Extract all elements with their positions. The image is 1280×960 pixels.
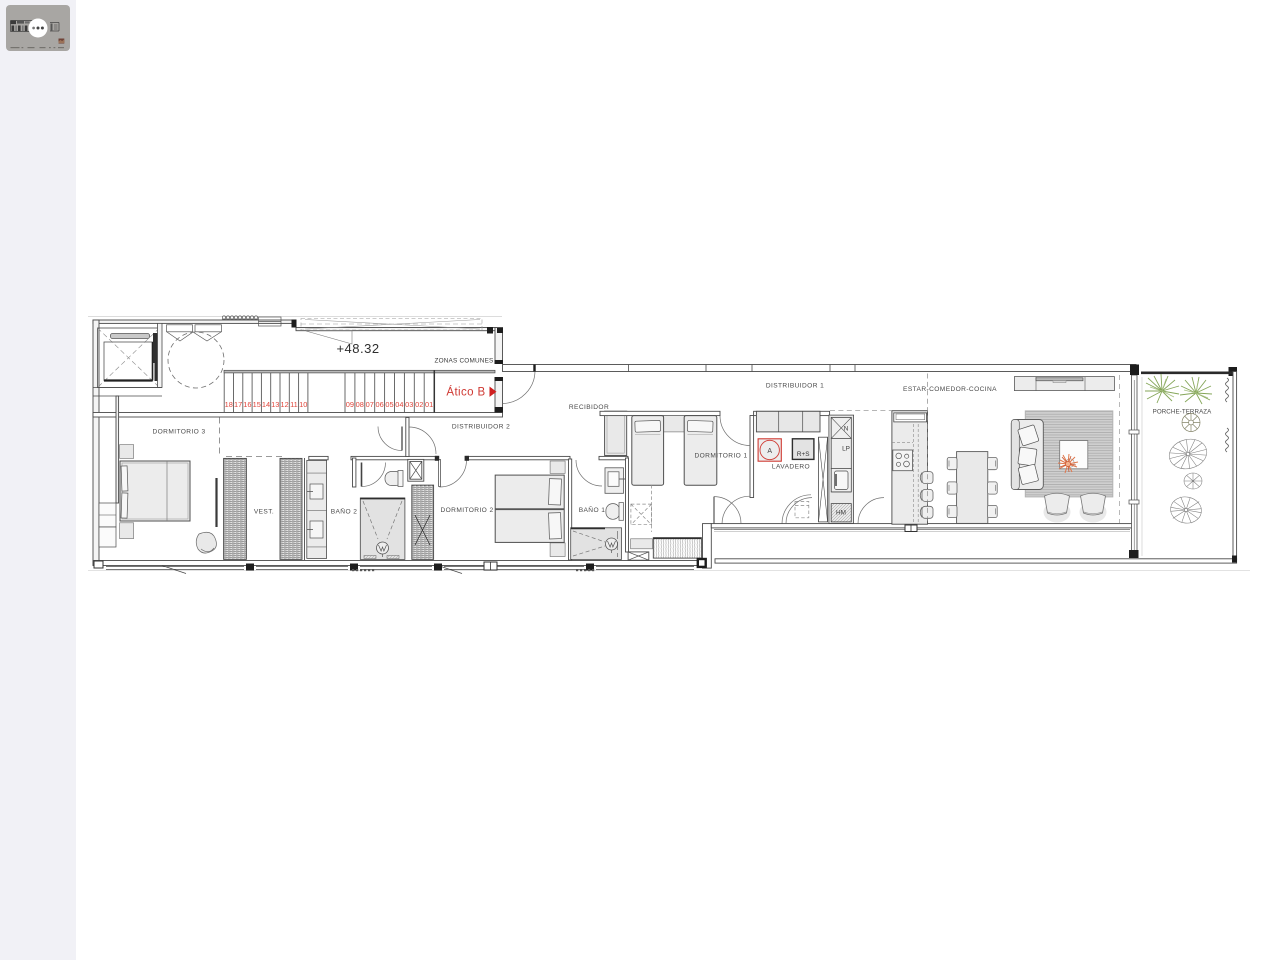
svg-text:04: 04 xyxy=(395,400,403,409)
svg-text:DORMITORIO 1: DORMITORIO 1 xyxy=(694,453,747,460)
svg-text:+48.32: +48.32 xyxy=(336,341,379,356)
svg-text:07: 07 xyxy=(366,400,374,409)
svg-text:DISTRIBUIDOR 2: DISTRIBUIDOR 2 xyxy=(452,424,510,431)
svg-text:13: 13 xyxy=(271,400,279,409)
svg-text:11: 11 xyxy=(290,400,298,409)
svg-text:ZONAS COMUNES: ZONAS COMUNES xyxy=(434,358,493,365)
svg-text:16: 16 xyxy=(243,400,251,409)
svg-text:ESTAR-COMEDOR-COCINA: ESTAR-COMEDOR-COCINA xyxy=(903,386,997,393)
svg-text:A: A xyxy=(767,448,772,455)
svg-text:05: 05 xyxy=(385,400,393,409)
svg-text:12: 12 xyxy=(280,400,288,409)
svg-text:18: 18 xyxy=(225,400,233,409)
svg-text:09: 09 xyxy=(346,400,354,409)
svg-text:BAÑO 2: BAÑO 2 xyxy=(331,507,358,516)
svg-text:14: 14 xyxy=(262,400,270,409)
svg-text:R+S: R+S xyxy=(797,451,810,458)
svg-text:01: 01 xyxy=(425,400,433,409)
svg-text:10: 10 xyxy=(299,400,307,409)
svg-text:DORMITORIO 3: DORMITORIO 3 xyxy=(152,429,205,436)
svg-text:DISTRIBUIDOR 1: DISTRIBUIDOR 1 xyxy=(766,382,824,389)
svg-text:06: 06 xyxy=(375,400,383,409)
svg-text:LAVADERO: LAVADERO xyxy=(772,463,810,470)
svg-text:15: 15 xyxy=(253,400,261,409)
svg-text:02: 02 xyxy=(415,400,423,409)
svg-text:LP: LP xyxy=(842,446,850,453)
svg-text:DORMITORIO 2: DORMITORIO 2 xyxy=(440,507,493,514)
svg-text:VEST.: VEST. xyxy=(254,509,274,516)
svg-text:17: 17 xyxy=(234,400,242,409)
svg-text:RECIBIDOR: RECIBIDOR xyxy=(569,404,609,411)
svg-text:08: 08 xyxy=(356,400,364,409)
svg-text:03: 03 xyxy=(405,400,413,409)
svg-text:Ático B: Ático B xyxy=(446,386,485,399)
svg-text:PORCHE-TERRAZA: PORCHE-TERRAZA xyxy=(1153,409,1213,416)
svg-text:BAÑO 1: BAÑO 1 xyxy=(579,505,606,514)
svg-text:N: N xyxy=(844,426,849,433)
svg-text:HM: HM xyxy=(836,510,846,517)
